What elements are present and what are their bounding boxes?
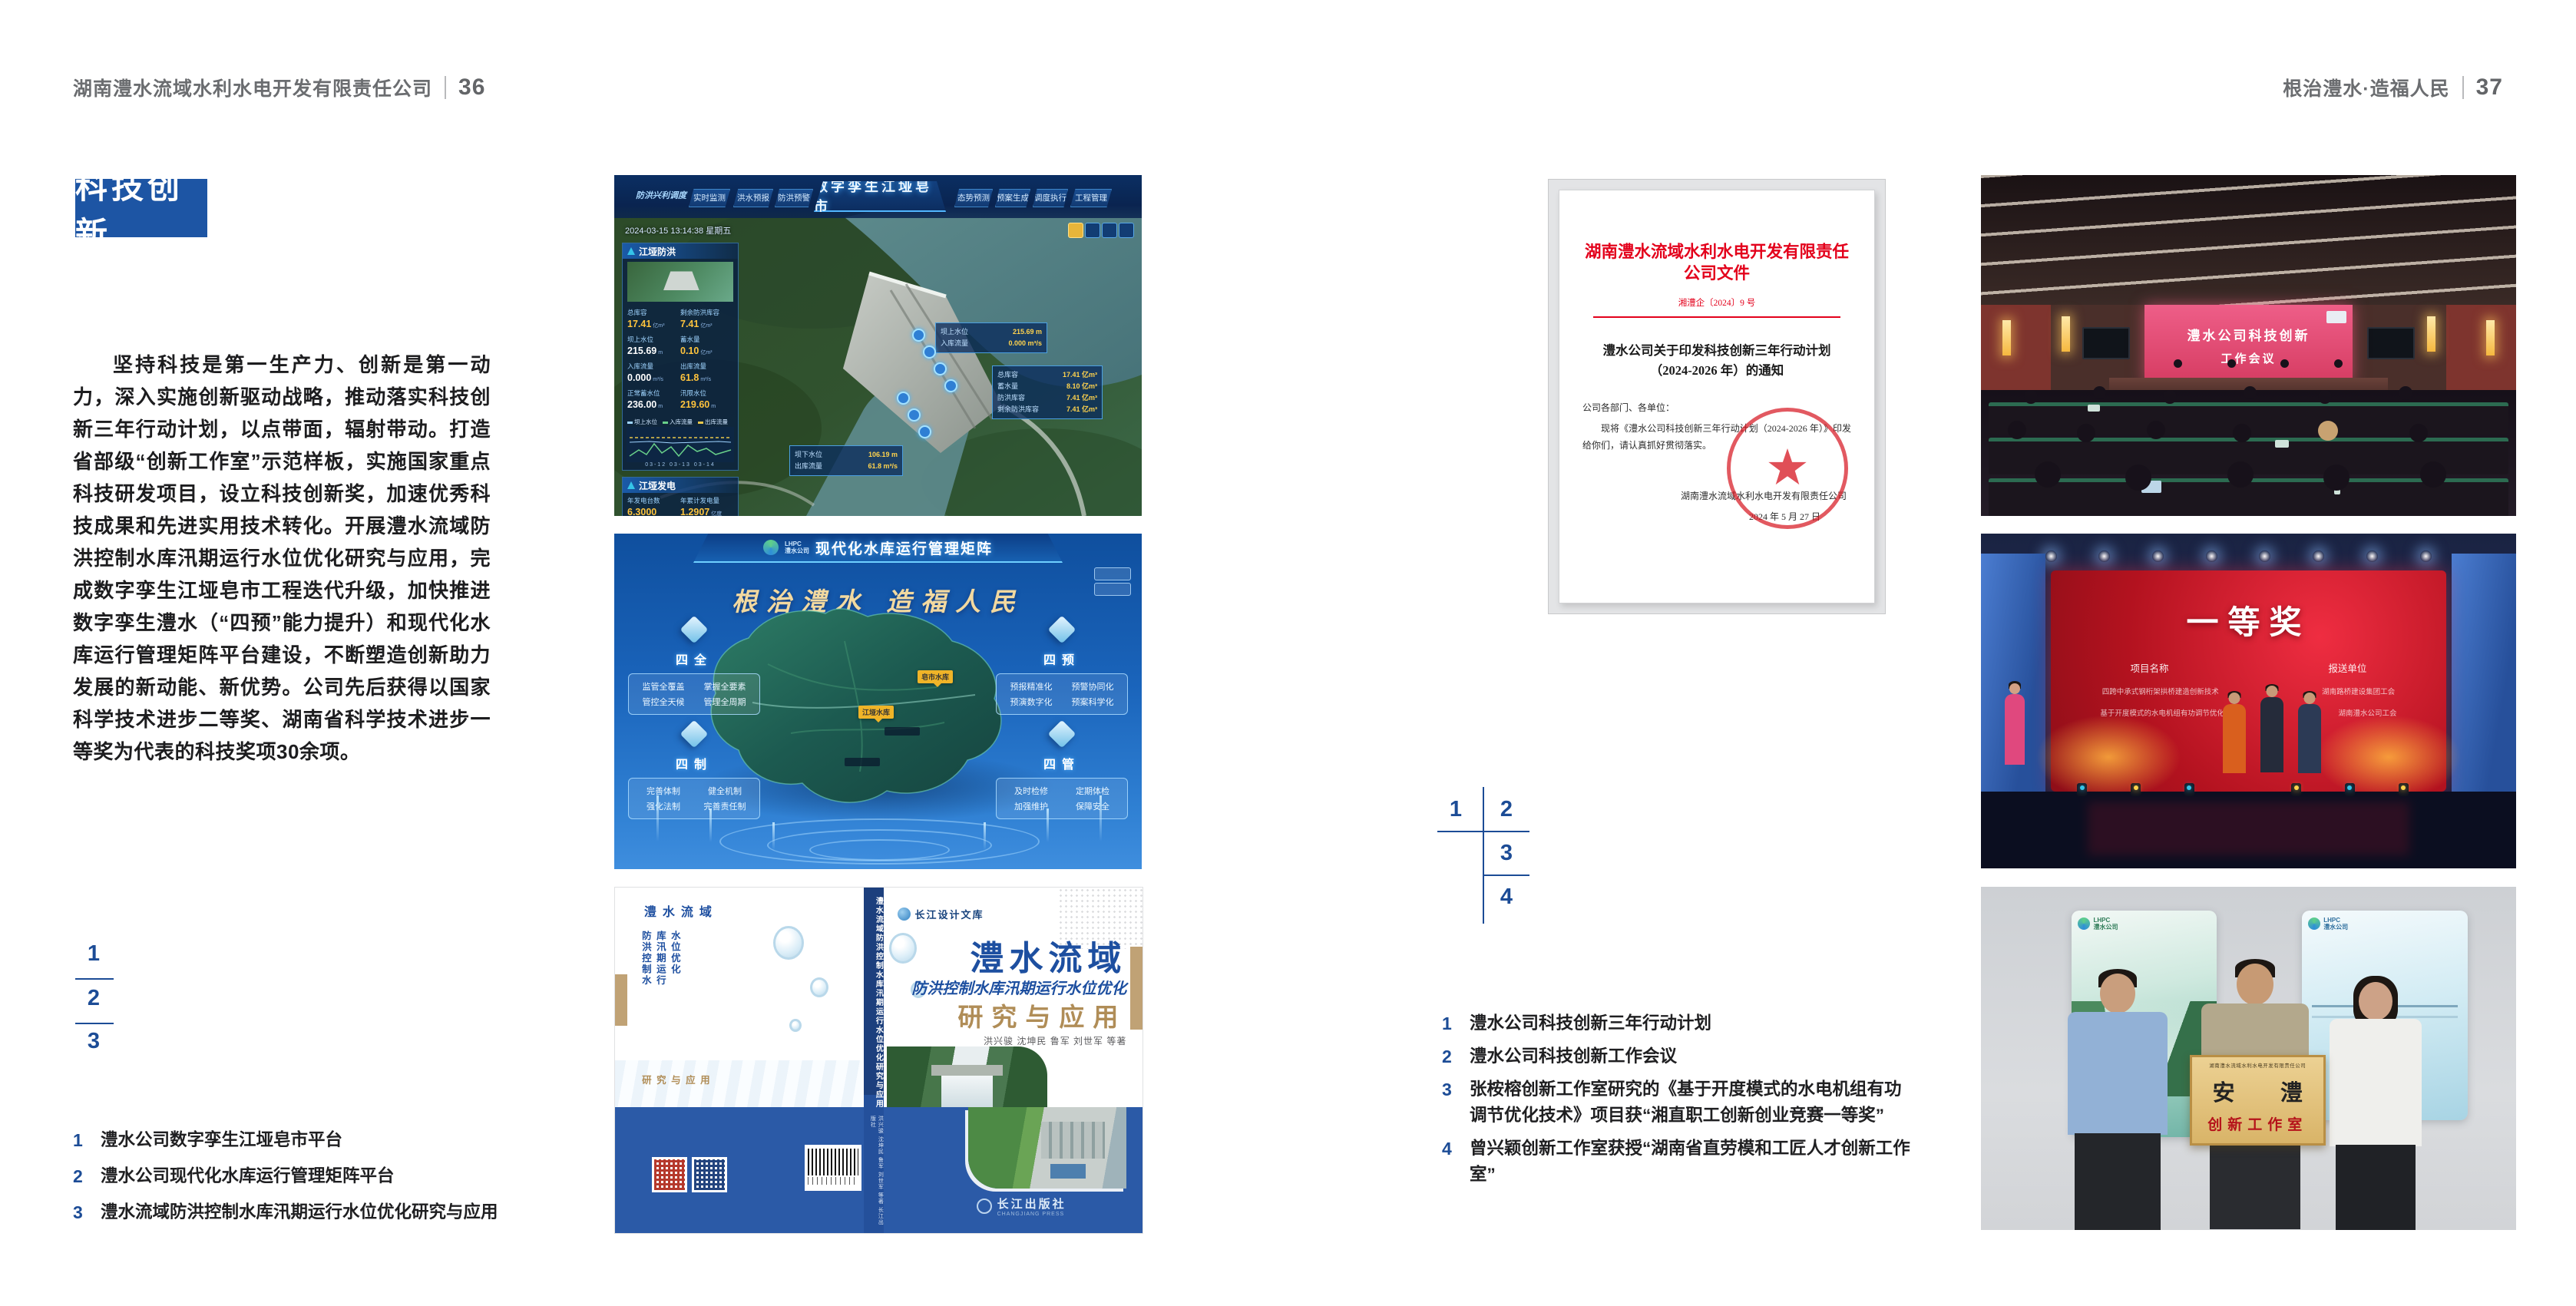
page-number-left: 36 (458, 74, 485, 101)
caption-text: 澧水公司科技创新三年行动计划 (1470, 1010, 1711, 1037)
presenter-suit (2257, 684, 2287, 793)
stage-light (2366, 551, 2378, 562)
woman-white-tee (2318, 976, 2433, 1230)
plaque-header: 湖南澧水流域水利水电开发有限责任公司 (2192, 1061, 2323, 1069)
winner-orange (2219, 691, 2250, 794)
lhpc-logo-icon (2308, 918, 2320, 930)
stage-light (2313, 551, 2324, 562)
dashboard-header-bar: 防洪兴利调度 实时监测 洪水预报 防洪预警 数字孪生江垭皂市 态势预测 预案生成… (614, 175, 1142, 218)
company-seal (1727, 408, 1848, 529)
panel-logo-icon (627, 247, 635, 255)
screen-logo (2326, 311, 2346, 323)
figure-matrix-platform: LHPC澧水公司 现代化水库运行管理矩阵 根治澧水 造福人民 皂市水库 江垭水库 (614, 534, 1142, 869)
power-panel-title: 江垭发电 (639, 479, 676, 492)
index-divider (1483, 875, 1529, 876)
flood-panel-header: 江垭防洪 (623, 243, 738, 259)
red-divider (1593, 316, 1840, 318)
gate-marker (923, 346, 936, 359)
figure-index-1: 1 (74, 941, 114, 967)
award-col1: 项目名称 (2131, 660, 2169, 675)
document-page: 湖南澧水流域水利水电开发有限责任公司文件 湘澧企〔2024〕9 号 澧水公司关于… (1559, 190, 1875, 603)
monitor-icon (680, 616, 709, 644)
audience-beige-coat (2318, 421, 2338, 441)
chart-x-axis: 03-12 03-13 03-14 (623, 462, 738, 470)
wall-lamp (2002, 320, 2011, 355)
dashboard-timestamp: 2024-03-15 13:14:38 星期五 (625, 224, 731, 236)
man-blue-polo (2056, 969, 2179, 1230)
stat-label: 正常蓄水位 (627, 388, 680, 398)
tab-realtime-monitor[interactable]: 实时监测 (689, 189, 730, 207)
caption-num: 2 (73, 1163, 101, 1189)
slogan: 根治澧水·造福人民 (2283, 74, 2449, 101)
header-divider (445, 76, 446, 99)
figure-index-3: 3 (1491, 841, 1522, 866)
caption-num: 2 (1442, 1043, 1470, 1070)
stat-value: 215.69 (627, 346, 656, 356)
panel-sizhi: 四制 完善体制健全机制 强化法制完善责任制 (628, 724, 760, 819)
dashboard-title: 数字孪生江垭皂市 (814, 181, 946, 212)
photo-innovation-studio-plaque: LHPC澧水公司 LHPC澧水公司 湖南澧水 (1981, 887, 2516, 1230)
caption-row: 1 澧水公司数字孪生江垭皂市平台 (73, 1127, 503, 1153)
figure-digital-twin-dashboard: 防洪兴利调度 实时监测 洪水预报 防洪预警 数字孪生江垭皂市 态势预测 预案生成… (614, 175, 1142, 516)
laptop (2275, 440, 2289, 448)
user-icon[interactable] (1068, 223, 1083, 238)
index-divider (75, 1023, 114, 1024)
hillside-dam-photo (968, 1107, 1126, 1189)
callout-downstream: 坝下水位106.19 m 出库流量61.8 m³/s (789, 445, 903, 476)
wall-tv (2082, 327, 2130, 359)
power-panel-header: 江垭发电 (623, 478, 738, 493)
back-cover-title: 澧水流域 防洪控制水库汛期运行水位优化 研究与应用 (639, 905, 713, 1096)
figure-index-1: 1 (1440, 797, 1471, 822)
winner-navy (2294, 691, 2325, 794)
award-col2: 报送单位 (2328, 660, 2366, 675)
stage-light (2259, 551, 2270, 562)
stat-label: 蓄水量 (680, 335, 733, 344)
book-authors: 洪兴骏 沈坤民 鲁军 刘世军 等著 (889, 1034, 1126, 1047)
stat-label: 入库流量 (627, 362, 680, 371)
caption-text: 曾兴颖创新工作室获授“湖南省直劳模和工匠人才创新工作室” (1470, 1136, 1916, 1188)
book-title-sub: 防洪控制水库汛期运行水位优化 (879, 976, 1127, 998)
water-drop-decoration (810, 977, 828, 997)
stat-label: 汛限水位 (680, 388, 733, 398)
book-spine: 澧水流域防洪控制水库汛期运行水位优化研究与应用 洪兴骏 沈坤民 鲁军 刘世军 等… (864, 888, 884, 1233)
tan-accent (615, 974, 627, 1027)
flood-stats-grid: 总库容17.41亿m³ 剩余防洪库容7.41亿m³ 坝上水位215.69m 蓄水… (623, 305, 738, 417)
company-name: 湖南澧水流域水利水电开发有限责任公司 (73, 74, 432, 101)
caption-num: 3 (1442, 1076, 1470, 1103)
gate-marker (934, 362, 947, 375)
header-divider (2462, 76, 2464, 99)
qr-code (692, 1157, 727, 1192)
stat-value: 7.41 (680, 319, 699, 329)
caption-text: 澧水公司数字孪生江垭皂市平台 (101, 1127, 342, 1153)
caption-row: 2 澧水公司现代化水库运行管理矩阵平台 (73, 1163, 503, 1189)
chart-legend: 坝上水位 入库流量 出库流量 (623, 417, 738, 427)
index-divider (1437, 831, 1529, 832)
weather-icon[interactable] (1085, 223, 1100, 238)
qr-code (652, 1157, 687, 1192)
caption-row: 1 澧水公司科技创新三年行动计划 (1442, 1010, 1916, 1037)
callout-reservoir-panel: 总库容17.41 亿m³ 蓄水量8.10 亿m³ 防洪库容7.41 亿m³ 剩余… (992, 365, 1103, 419)
document-title: 湖南澧水流域水利水电开发有限责任公司文件 (1582, 241, 1851, 284)
section-paragraph: 坚持科技是第一生产力、创新是第一动力，深入实施创新驱动战略，推动落实科技创新三年… (73, 349, 491, 768)
stat-label: 坝上水位 (627, 335, 680, 344)
caption-text: 张桉榕创新工作室研究的《基于开度模式的水电机组有功调节优化技术》项目获“湘直职工… (1470, 1076, 1916, 1129)
figure-index-2: 2 (74, 986, 114, 1011)
dam-shape (663, 271, 699, 290)
stat-label: 剩余防洪库容 (680, 308, 733, 317)
panel-title: 四全 (628, 650, 760, 668)
caption-num: 3 (73, 1199, 101, 1225)
caption-row: 3 澧水流域防洪控制水库汛期运行水位优化研究与应用 (73, 1199, 503, 1225)
host (1999, 681, 2030, 796)
gate-marker (918, 425, 931, 438)
station-mini-label (885, 727, 920, 736)
publisher-icon (977, 1199, 992, 1214)
index-divider (75, 978, 114, 980)
tan-accent (1130, 947, 1143, 1030)
caption-row: 2 澧水公司科技创新工作会议 (1442, 1043, 1916, 1070)
book-title-main: 澧水流域 (931, 931, 1126, 980)
wall-tv (2367, 327, 2415, 359)
dashboard-sidebar: 江垭防洪 总库容17.41亿m³ 剩余防洪库容7.41亿m³ 坝上水位215.6… (622, 243, 739, 510)
maintenance-icon (1048, 720, 1076, 749)
figure-index-3: 3 (74, 1029, 114, 1054)
document-subject: 澧水公司关于印发科技创新三年行动计划（2024-2026 年）的通知 (1582, 341, 1851, 381)
flood-panel-title: 江垭防洪 (639, 245, 676, 258)
figure-index-4: 4 (1491, 884, 1522, 910)
back-wall: 澧水公司科技创新 工作会议 (1981, 305, 2516, 390)
index-divider (1483, 787, 1484, 924)
caption-text: 澧水公司现代化水库运行管理矩阵平台 (101, 1163, 395, 1189)
panel-siguan: 四管 及时检修定期体检 加强维护保障安全 (996, 724, 1128, 819)
stat-label: 出库流量 (680, 362, 733, 371)
caption-num: 4 (1442, 1136, 1470, 1162)
power-stats-grid: 年发电台数6.3000 年累计发电量1.2907亿度 月累计发电量3359.21… (623, 493, 738, 516)
institution-icon (680, 720, 709, 749)
caption-num: 1 (73, 1127, 101, 1153)
stage-light (2206, 551, 2217, 562)
section-title: 科技创新 (75, 179, 207, 237)
screen-line1: 澧水公司科技创新 (2144, 325, 2353, 344)
water-drop-decoration (789, 1019, 802, 1032)
gold-glow (2035, 715, 2181, 799)
laptop (2088, 405, 2100, 412)
stage-light (2152, 551, 2164, 562)
caption-text: 澧水流域防洪控制水库汛期运行水位优化研究与应用 (101, 1199, 498, 1225)
book-title-tail: 研究与应用 (921, 997, 1126, 1033)
stat-value: 17.41 (627, 319, 651, 329)
tab-dispatch-exec[interactable]: 调度执行 (1033, 189, 1068, 207)
stat-value: 236.00 (627, 399, 656, 410)
callout-upstream: 坝上水位215.69 m 入库流量0.000 m³/s (935, 322, 1047, 353)
figure-book-cover: 澧水流域 防洪控制水库汛期运行水位优化 研究与应用 澧水流域防洪控制水库汛期运行… (614, 887, 1143, 1234)
stage-light (2045, 551, 2057, 562)
power-panel: 江垭发电 年发电台数6.3000 年累计发电量1.2907亿度 月累计发电量33… (622, 477, 739, 516)
stat-value: 0.10 (680, 346, 699, 356)
station-mini-label (845, 758, 880, 766)
caption-list-right: 1 澧水公司科技创新三年行动计划 2 澧水公司科技创新工作会议 3 张桉榕创新工… (1442, 1010, 1916, 1195)
layers-icon[interactable] (1102, 223, 1117, 238)
isbn-barcode (805, 1145, 861, 1191)
water-level-chart (627, 427, 734, 462)
audience-area (1981, 390, 2516, 516)
figure-official-document: 湖南澧水流域水利水电开发有限责任公司文件 湘澧企〔2024〕9 号 澧水公司关于… (1548, 179, 1886, 614)
photo-innovation-meeting: 澧水公司科技创新 工作会议 (1981, 175, 2516, 516)
ceiling (1981, 175, 2516, 305)
wall-lamp (2062, 316, 2070, 352)
document-number: 湘澧企〔2024〕9 号 (1582, 296, 1851, 309)
settings-icon[interactable] (1119, 223, 1134, 238)
gold-glow (2316, 715, 2462, 799)
panel-siquan: 四全 监管全覆盖掌握全要素 管控全天候管理全周期 (628, 620, 760, 715)
tab-plan-generate[interactable]: 预案生成 (995, 189, 1030, 207)
stat-value: 219.60 (680, 399, 709, 410)
lhpc-logo-icon (2078, 918, 2090, 930)
tab-project-manage[interactable]: 工程管理 (1070, 189, 1112, 207)
header-right: 根治澧水·造福人民 37 (2283, 74, 2503, 101)
gate-marker (944, 379, 957, 392)
caption-text: 澧水公司科技创新工作会议 (1470, 1043, 1677, 1070)
seal-star-icon (1763, 444, 1812, 493)
brand-logo: 长江设计文库 (898, 907, 984, 921)
panel-siyu: 四预 预报精准化预警协同化 预演数字化预案科学化 (996, 620, 1128, 715)
tab-flood-forecast[interactable]: 洪水预报 (733, 189, 773, 207)
stage-light (2420, 551, 2432, 562)
tab-flood-warning[interactable]: 防洪预警 (775, 189, 813, 207)
brochure-spread: 湖南澧水流域水利水电开发有限责任公司 36 根治澧水·造福人民 37 科技创新 … (0, 0, 2576, 1306)
stage-light (2098, 551, 2110, 562)
gate-marker (912, 329, 925, 342)
stat-value: 0.000 (627, 372, 651, 383)
caption-row: 3 张桉榕创新工作室研究的《基于开度模式的水电机组有功调节优化技术》项目获“湘直… (1442, 1076, 1916, 1129)
hologram-ring (809, 839, 950, 861)
flood-panel: 江垭防洪 总库容17.41亿m³ 剩余防洪库容7.41亿m³ 坝上水位215.6… (622, 243, 739, 471)
wall-lamp (2427, 316, 2435, 352)
plaque-name: 安 澧 (2192, 1075, 2323, 1107)
caption-row: 4 曾兴颖创新工作室获授“湖南省直劳模和工匠人才创新工作室” (1442, 1136, 1916, 1188)
dam-thumbnail (627, 262, 733, 302)
panel-title: 四预 (996, 650, 1128, 668)
figure-index-2: 2 (1491, 797, 1522, 822)
dashboard-menu-label: 防洪兴利调度 (636, 189, 689, 201)
header-left: 湖南澧水流域水利水电开发有限责任公司 36 (73, 74, 485, 101)
panel-logo-icon (627, 481, 635, 489)
screen-reflection (2088, 802, 2409, 855)
innovation-studio-plaque: 湖南澧水流域水利水电开发有限责任公司 安 澧 创新工作室 (2190, 1055, 2326, 1146)
plaque-subtitle: 创新工作室 (2192, 1113, 2323, 1134)
publisher-logo: 长江出版社 CHANGJIANG PRESS (977, 1195, 1066, 1217)
gate-marker (897, 392, 910, 405)
panel-title: 四制 (628, 754, 760, 772)
marker-jiangya-reservoir[interactable]: 江垭水库 (858, 706, 894, 719)
tab-situation-forecast[interactable]: 态势预测 (954, 189, 993, 207)
wall-lamp (2486, 320, 2495, 355)
canyon-dam-photo (887, 1046, 1048, 1107)
water-drop-decoration (889, 933, 917, 964)
caption-num: 1 (1442, 1010, 1470, 1037)
forecast-icon (1048, 616, 1076, 644)
stat-value: 61.8 (680, 372, 699, 383)
caption-list-left: 1 澧水公司数字孪生江垭皂市平台 2 澧水公司现代化水库运行管理矩阵平台 3 澧… (73, 1127, 503, 1235)
award-title: 一等奖 (2051, 597, 2447, 643)
panel-title: 四管 (996, 754, 1128, 772)
page-number-right: 37 (2476, 74, 2503, 101)
marker-zaoshi-reservoir[interactable]: 皂市水库 (918, 670, 953, 683)
stat-label: 总库容 (627, 308, 680, 317)
photo-award-ceremony: 一等奖 项目名称 报送单位 四跨中承式钢桁架拱桥建造创新技术 湖南路桥建设集团工… (1981, 534, 2516, 868)
gate-marker (908, 408, 921, 422)
water-drop-decoration (773, 926, 804, 960)
meeting-screen: 澧水公司科技创新 工作会议 (2144, 305, 2353, 383)
changjiang-design-icon (898, 908, 911, 921)
